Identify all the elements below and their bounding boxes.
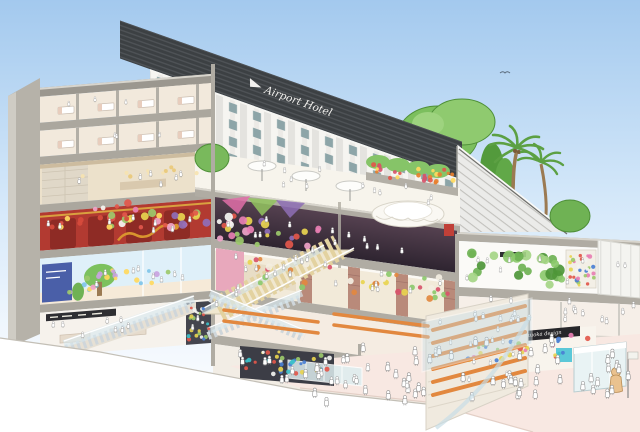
left-cut-wall-edge xyxy=(8,92,16,348)
kids-shopfront xyxy=(42,262,72,302)
screenshot-root: Airport Hotel xyxy=(0,0,640,432)
canopy-chandelier xyxy=(372,201,444,227)
building-illustration: Airport Hotel xyxy=(0,0,640,432)
roof-edge-shrub xyxy=(550,200,590,232)
white-wall-panel-lines xyxy=(598,240,640,298)
